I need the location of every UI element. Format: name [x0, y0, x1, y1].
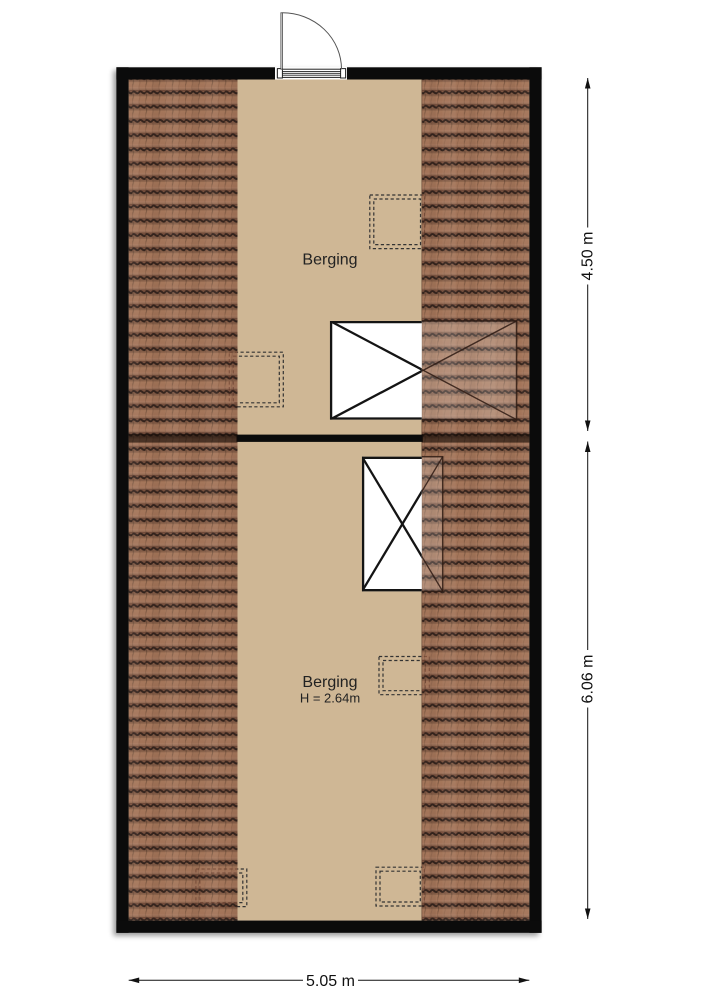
- svg-text:5.05 m: 5.05 m: [306, 973, 355, 990]
- svg-text:6.06 m: 6.06 m: [580, 655, 597, 704]
- svg-text:Berging: Berging: [302, 674, 357, 691]
- svg-text:H = 2.64m: H = 2.64m: [300, 691, 360, 706]
- svg-text:Berging: Berging: [302, 252, 357, 269]
- svg-text:4.50 m: 4.50 m: [580, 232, 597, 281]
